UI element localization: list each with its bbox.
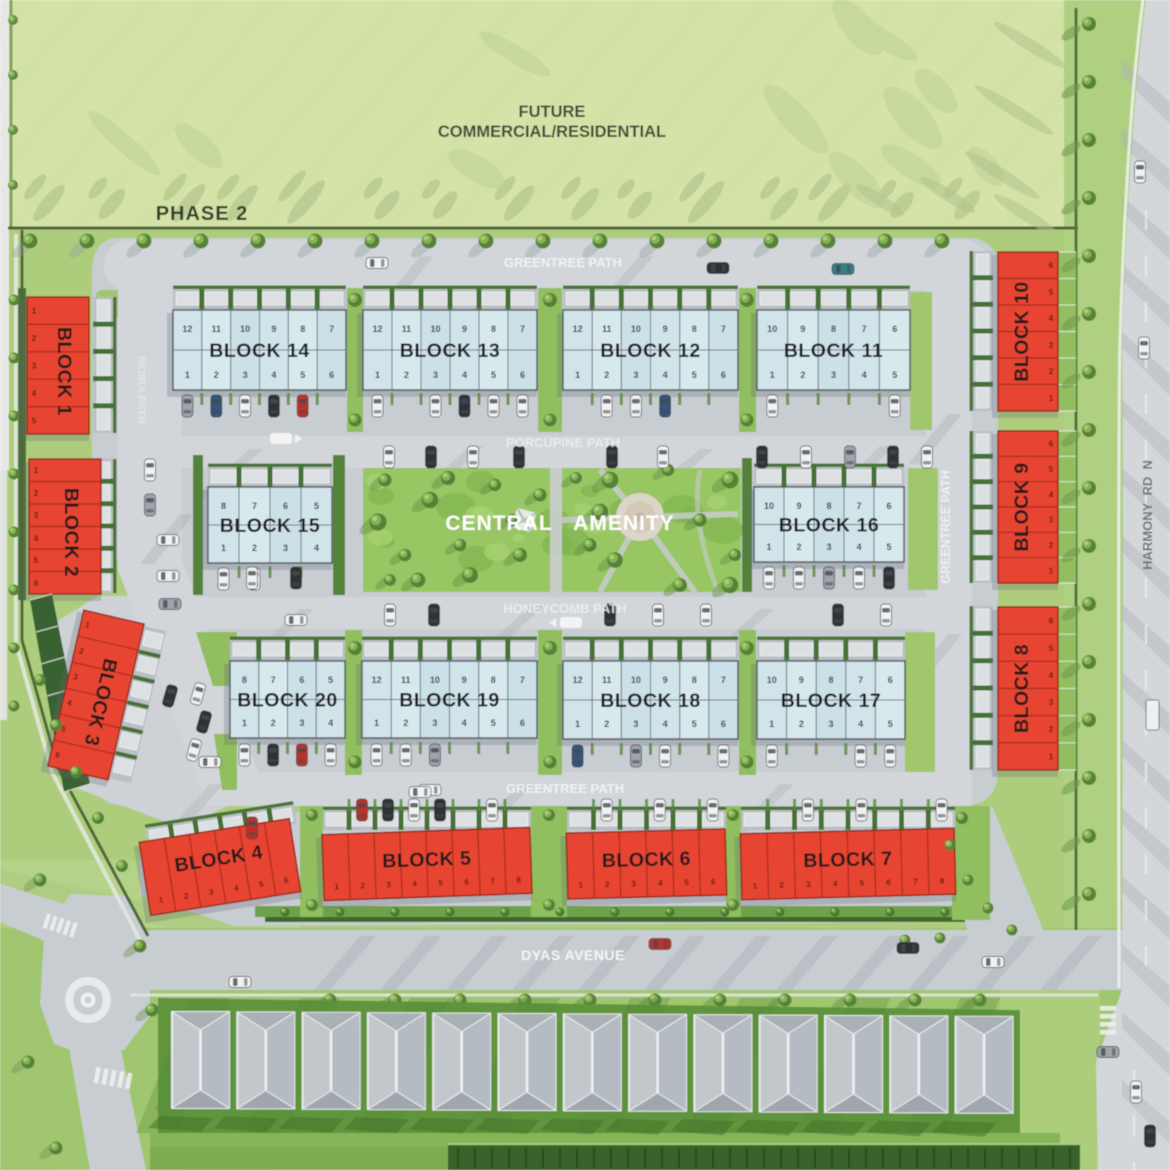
svg-text:DYAS AVENUE: DYAS AVENUE bbox=[521, 947, 625, 963]
svg-text:PHASE 2: PHASE 2 bbox=[156, 203, 249, 225]
svg-text:MOIRA PATH: MOIRA PATH bbox=[135, 356, 147, 424]
svg-text:HARMONY RD N: HARMONY RD N bbox=[1140, 460, 1155, 570]
svg-text:GREENTREE PATH: GREENTREE PATH bbox=[939, 470, 953, 583]
svg-text:HONEYCOMB PATH: HONEYCOMB PATH bbox=[503, 601, 626, 616]
svg-text:PORCUPINE PATH: PORCUPINE PATH bbox=[506, 435, 620, 450]
svg-text:GREENTREE PATH: GREENTREE PATH bbox=[504, 255, 622, 270]
svg-text:FUTURE: FUTURE bbox=[519, 103, 586, 121]
svg-text:CENTRAL AMENITY: CENTRAL AMENITY bbox=[445, 512, 674, 535]
svg-text:COMMERCIAL/RESIDENTIAL: COMMERCIAL/RESIDENTIAL bbox=[438, 123, 666, 141]
svg-text:GREENTREE PATH: GREENTREE PATH bbox=[506, 781, 624, 796]
